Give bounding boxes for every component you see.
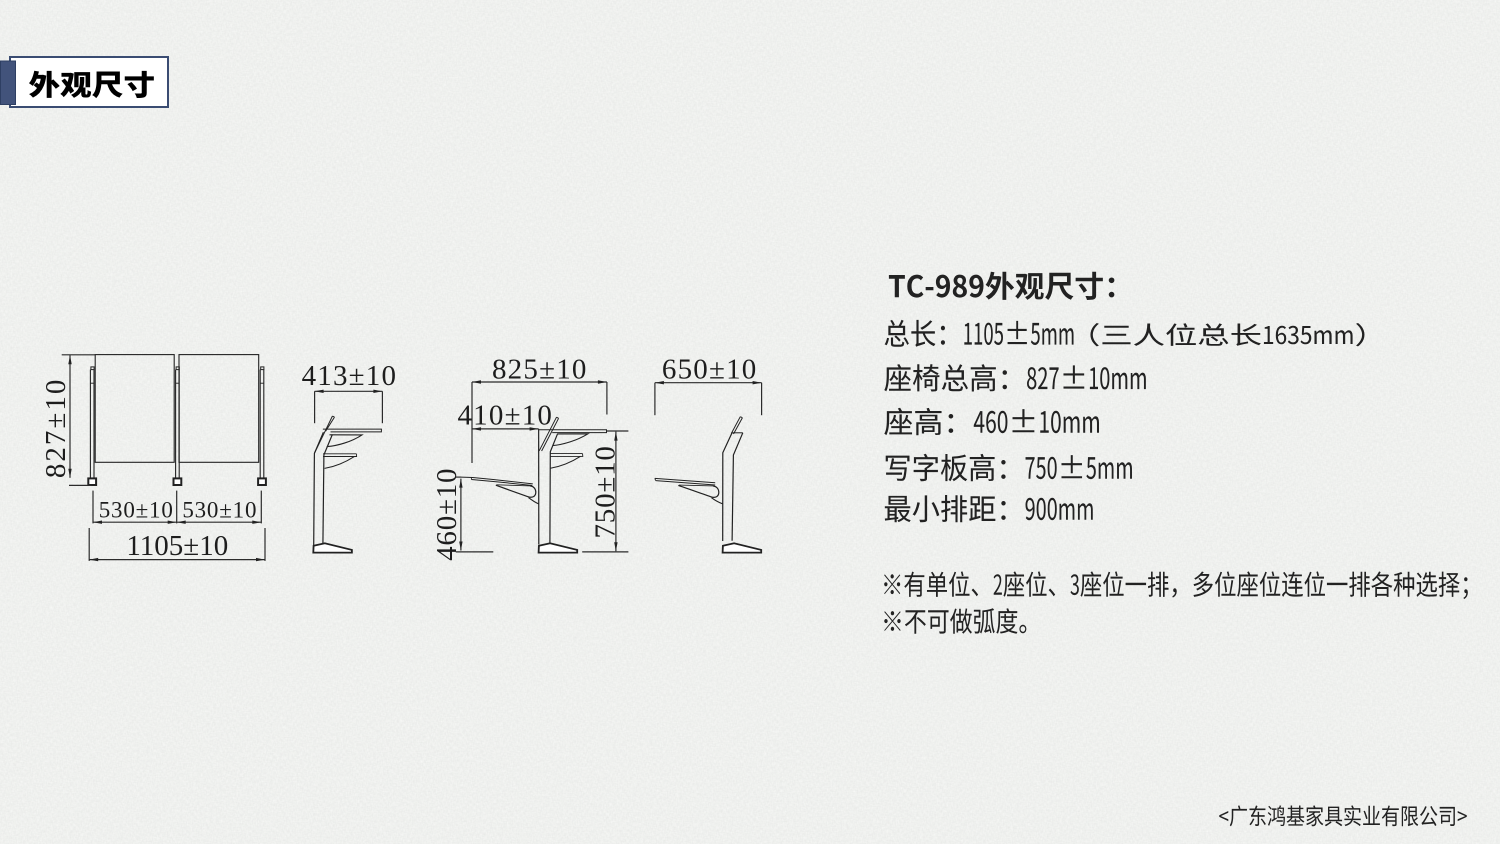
svg-text:530±10: 530±10 (99, 497, 174, 522)
svg-text:1105±10: 1105±10 (126, 530, 228, 562)
svg-text:650±10: 650±10 (662, 353, 758, 385)
svg-text:825±10: 825±10 (492, 353, 588, 385)
svg-text:750±10: 750±10 (589, 445, 621, 538)
svg-text:410±10: 410±10 (457, 399, 553, 431)
svg-text:460±10: 460±10 (431, 468, 463, 561)
svg-text:413±10: 413±10 (302, 360, 398, 392)
svg-text:530±10: 530±10 (182, 497, 257, 522)
svg-text:827±10: 827±10 (40, 378, 72, 478)
